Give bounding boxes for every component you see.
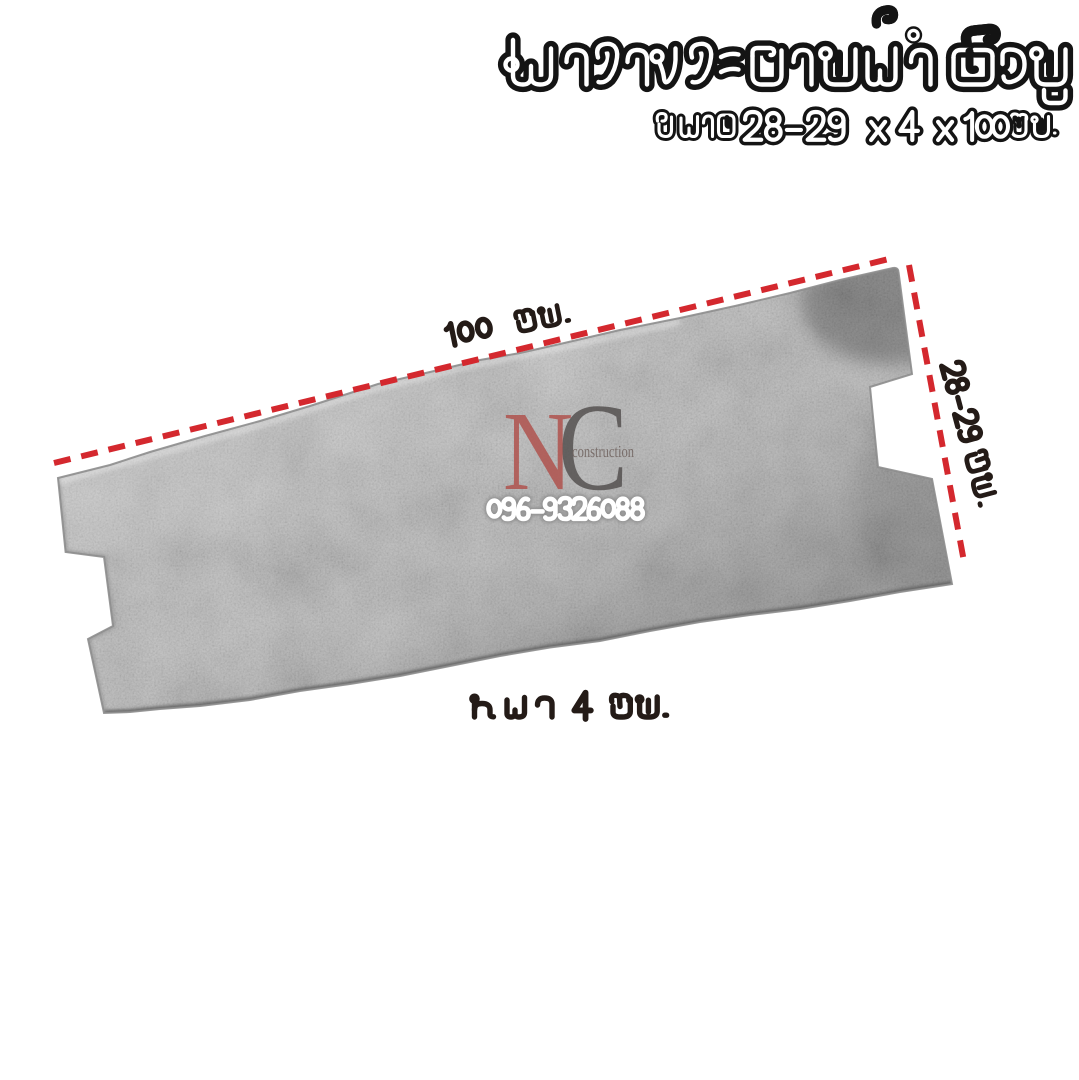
svg-text:construction: construction <box>572 442 634 461</box>
